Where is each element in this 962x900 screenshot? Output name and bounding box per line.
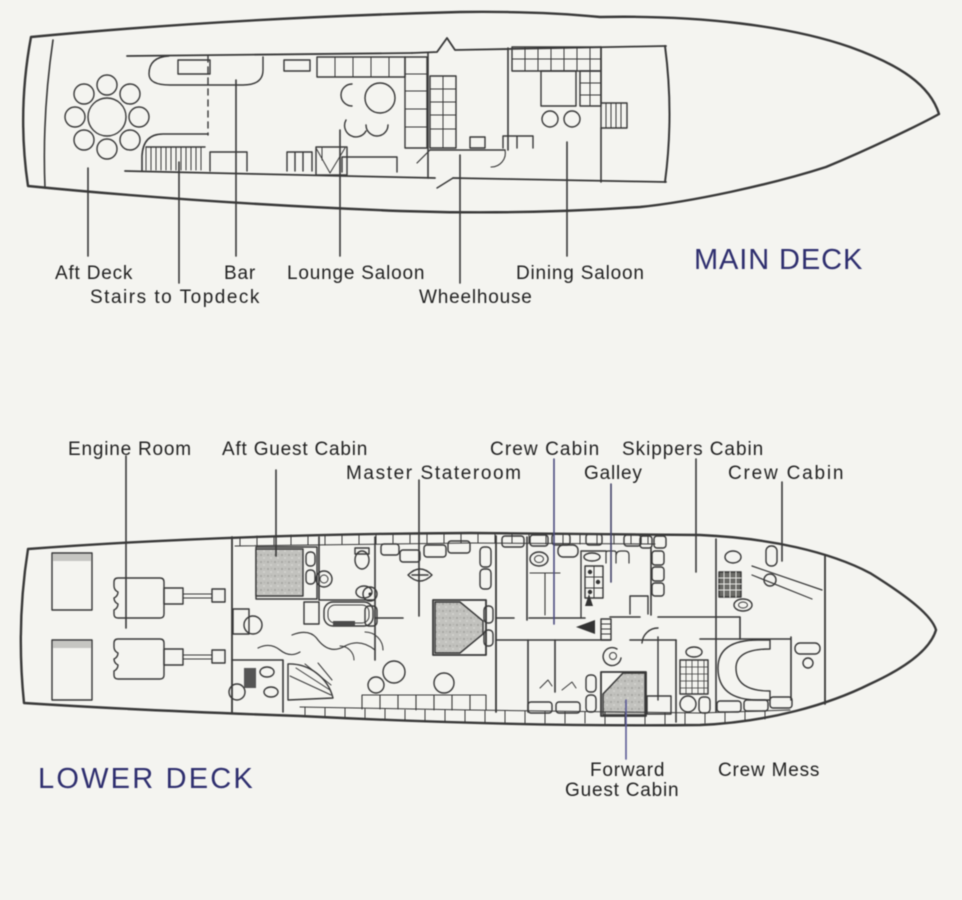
svg-text:MAIN DECK: MAIN DECK bbox=[694, 244, 863, 276]
svg-text:Crew Mess: Crew Mess bbox=[718, 760, 820, 781]
svg-text:Guest Cabin: Guest Cabin bbox=[565, 780, 679, 801]
svg-text:Aft Guest Cabin: Aft Guest Cabin bbox=[222, 439, 368, 460]
svg-text:Crew Cabin: Crew Cabin bbox=[728, 463, 845, 484]
svg-text:Engine Room: Engine Room bbox=[68, 439, 192, 460]
svg-text:Aft Deck: Aft Deck bbox=[55, 263, 133, 284]
svg-text:Crew Cabin: Crew Cabin bbox=[490, 439, 600, 460]
svg-text:Lounge Saloon: Lounge Saloon bbox=[287, 263, 425, 284]
svg-text:Bar: Bar bbox=[224, 263, 256, 284]
svg-text:Dining Saloon: Dining Saloon bbox=[516, 263, 645, 284]
svg-text:Galley: Galley bbox=[584, 463, 643, 484]
svg-text:Stairs to Topdeck: Stairs to Topdeck bbox=[90, 287, 261, 308]
svg-text:Skippers Cabin: Skippers Cabin bbox=[622, 439, 764, 460]
svg-text:LOWER DECK: LOWER DECK bbox=[38, 763, 255, 795]
svg-text:Wheelhouse: Wheelhouse bbox=[419, 287, 533, 308]
svg-text:Forward: Forward bbox=[590, 760, 665, 781]
svg-text:Master Stateroom: Master Stateroom bbox=[346, 463, 523, 484]
